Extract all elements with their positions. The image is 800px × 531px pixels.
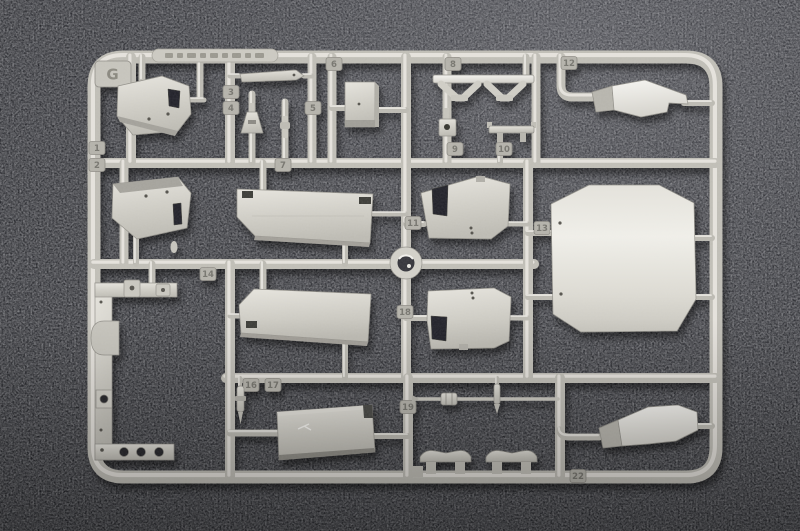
vignette bbox=[0, 0, 800, 531]
photo-stage: Injection-molded model kit sprue, runner… bbox=[0, 0, 800, 531]
sprue-photo: Injection-molded model kit sprue, runner… bbox=[0, 0, 800, 531]
